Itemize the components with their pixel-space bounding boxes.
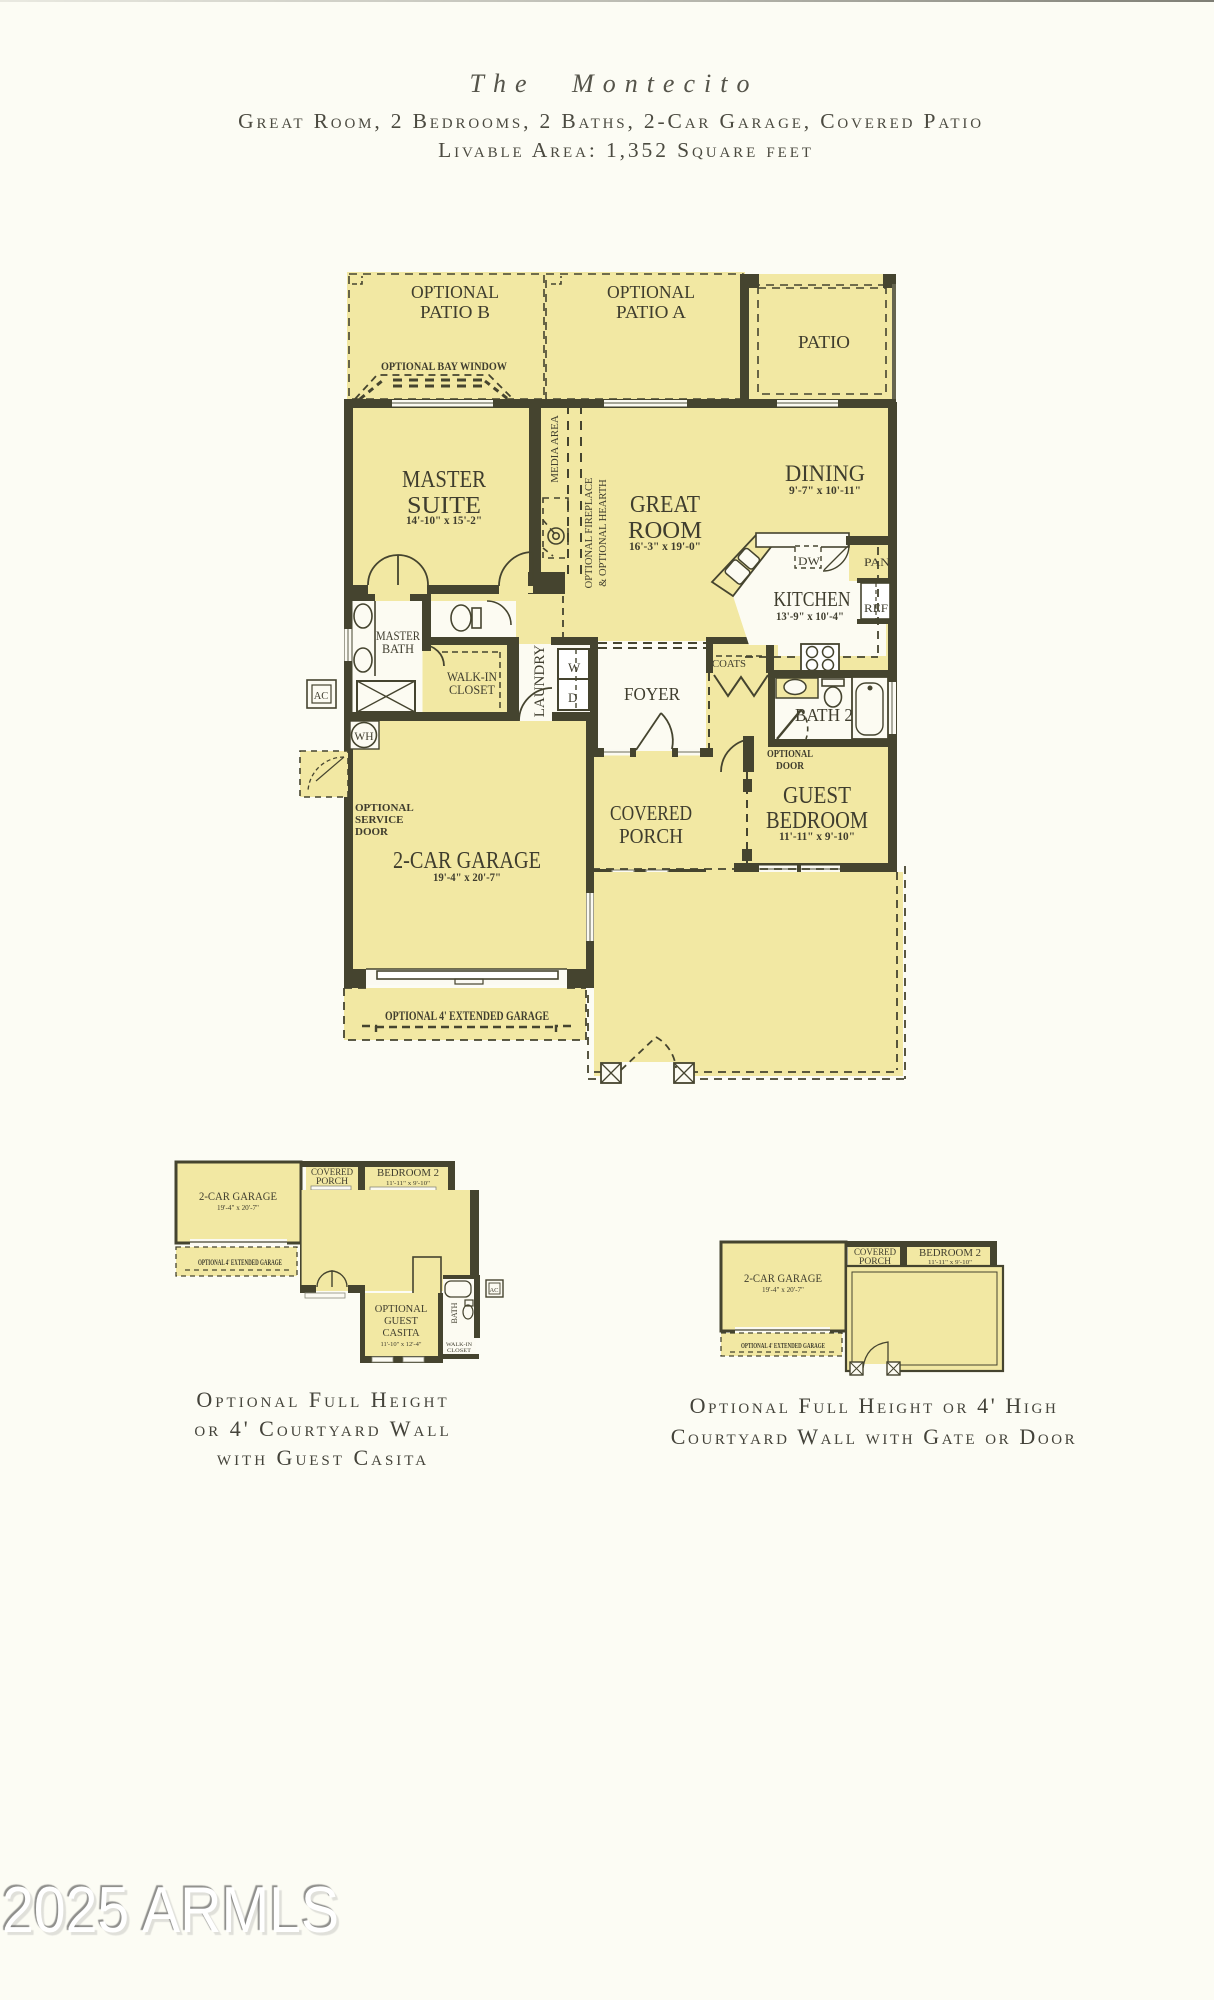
svg-text:BEDROOM 2: BEDROOM 2: [377, 1168, 439, 1179]
svg-text:OPTIONAL FIREPLACE: OPTIONAL FIREPLACE: [584, 478, 595, 589]
svg-text:11'-11" x 9'-10": 11'-11" x 9'-10": [779, 831, 855, 843]
svg-text:WALK-IN: WALK-IN: [447, 670, 497, 684]
svg-text:OPTIONAL: OPTIONAL: [375, 1304, 428, 1315]
svg-text:OPTIONAL: OPTIONAL: [411, 282, 499, 302]
svg-text:CLOSET: CLOSET: [447, 1348, 472, 1354]
svg-text:BATH: BATH: [382, 642, 414, 656]
svg-text:OPTIONAL 4' EXTENDED GARAGE: OPTIONAL 4' EXTENDED GARAGE: [198, 1258, 282, 1267]
svg-text:AC: AC: [489, 1287, 498, 1294]
svg-text:DOOR: DOOR: [355, 826, 389, 838]
svg-text:OPTIONAL 4' EXTENDED GARAGE: OPTIONAL 4' EXTENDED GARAGE: [741, 1341, 825, 1350]
svg-text:2-CAR GARAGE: 2-CAR GARAGE: [393, 848, 541, 874]
svg-text:2-CAR GARAGE: 2-CAR GARAGE: [199, 1189, 277, 1203]
svg-text:OPTIONAL: OPTIONAL: [607, 282, 695, 302]
svg-text:GUEST: GUEST: [384, 1316, 418, 1327]
svg-text:D: D: [568, 690, 577, 705]
svg-text:OPTIONAL: OPTIONAL: [767, 748, 813, 760]
svg-text:LAUNDRY: LAUNDRY: [532, 645, 548, 718]
svg-text:MASTER: MASTER: [402, 467, 486, 493]
svg-text:MEDIA AREA: MEDIA AREA: [549, 415, 561, 483]
svg-text:SERVICE: SERVICE: [355, 814, 404, 826]
svg-text:OPTIONAL 4' EXTENDED GARAGE: OPTIONAL 4' EXTENDED GARAGE: [385, 1008, 549, 1023]
svg-text:CLOSET: CLOSET: [449, 683, 495, 697]
svg-text:PORCH: PORCH: [859, 1256, 892, 1266]
svg-text:GUEST: GUEST: [783, 783, 851, 809]
svg-text:KITCHEN: KITCHEN: [774, 587, 851, 611]
svg-text:DOOR: DOOR: [776, 760, 805, 772]
svg-text:OPTIONAL BAY WINDOW: OPTIONAL BAY WINDOW: [381, 361, 507, 373]
svg-text:PORCH: PORCH: [619, 824, 683, 848]
svg-text:MASTER: MASTER: [376, 629, 421, 643]
svg-text:13'-9" x 10'-4": 13'-9" x 10'-4": [776, 611, 844, 623]
svg-text:19'-4" x 20'-7": 19'-4" x 20'-7": [217, 1204, 259, 1212]
svg-text:REF: REF: [864, 603, 888, 615]
svg-text:PORCH: PORCH: [316, 1176, 349, 1186]
svg-text:GREAT: GREAT: [630, 492, 700, 518]
svg-text:WH: WH: [354, 731, 373, 743]
svg-text:PATIO A: PATIO A: [616, 302, 686, 322]
svg-text:DW: DW: [798, 556, 820, 568]
svg-text:PATIO B: PATIO B: [420, 302, 490, 322]
svg-text:PATIO: PATIO: [798, 332, 850, 352]
svg-text:FOYER: FOYER: [624, 684, 680, 704]
svg-text:& OPTIONAL HEARTH: & OPTIONAL HEARTH: [598, 479, 609, 587]
svg-text:OPTIONAL: OPTIONAL: [355, 802, 414, 814]
svg-text:11'-11" x 9'-10": 11'-11" x 9'-10": [386, 1180, 430, 1187]
svg-text:14'-10" x 15'-2": 14'-10" x 15'-2": [406, 513, 482, 527]
svg-text:W: W: [568, 660, 581, 675]
svg-text:BEDROOM 2: BEDROOM 2: [919, 1248, 981, 1259]
svg-text:19'-4" x 20'-7": 19'-4" x 20'-7": [433, 872, 501, 884]
svg-text:AC: AC: [314, 691, 329, 702]
svg-text:DINING: DINING: [785, 461, 865, 486]
svg-text:BATH 2: BATH 2: [795, 705, 853, 725]
svg-text:BATH: BATH: [450, 1302, 459, 1323]
svg-text:11'-10" x 12'-4": 11'-10" x 12'-4": [381, 1341, 422, 1348]
svg-text:19'-4" x 20'-7": 19'-4" x 20'-7": [762, 1286, 804, 1294]
svg-text:9'-7" x 10'-11": 9'-7" x 10'-11": [789, 485, 861, 497]
svg-text:2-CAR GARAGE: 2-CAR GARAGE: [744, 1271, 822, 1285]
svg-text:COVERED: COVERED: [610, 801, 692, 825]
svg-text:16'-3" x 19'-0": 16'-3" x 19'-0": [629, 539, 701, 553]
svg-text:COATS: COATS: [712, 658, 746, 670]
svg-text:CASITA: CASITA: [382, 1328, 419, 1339]
